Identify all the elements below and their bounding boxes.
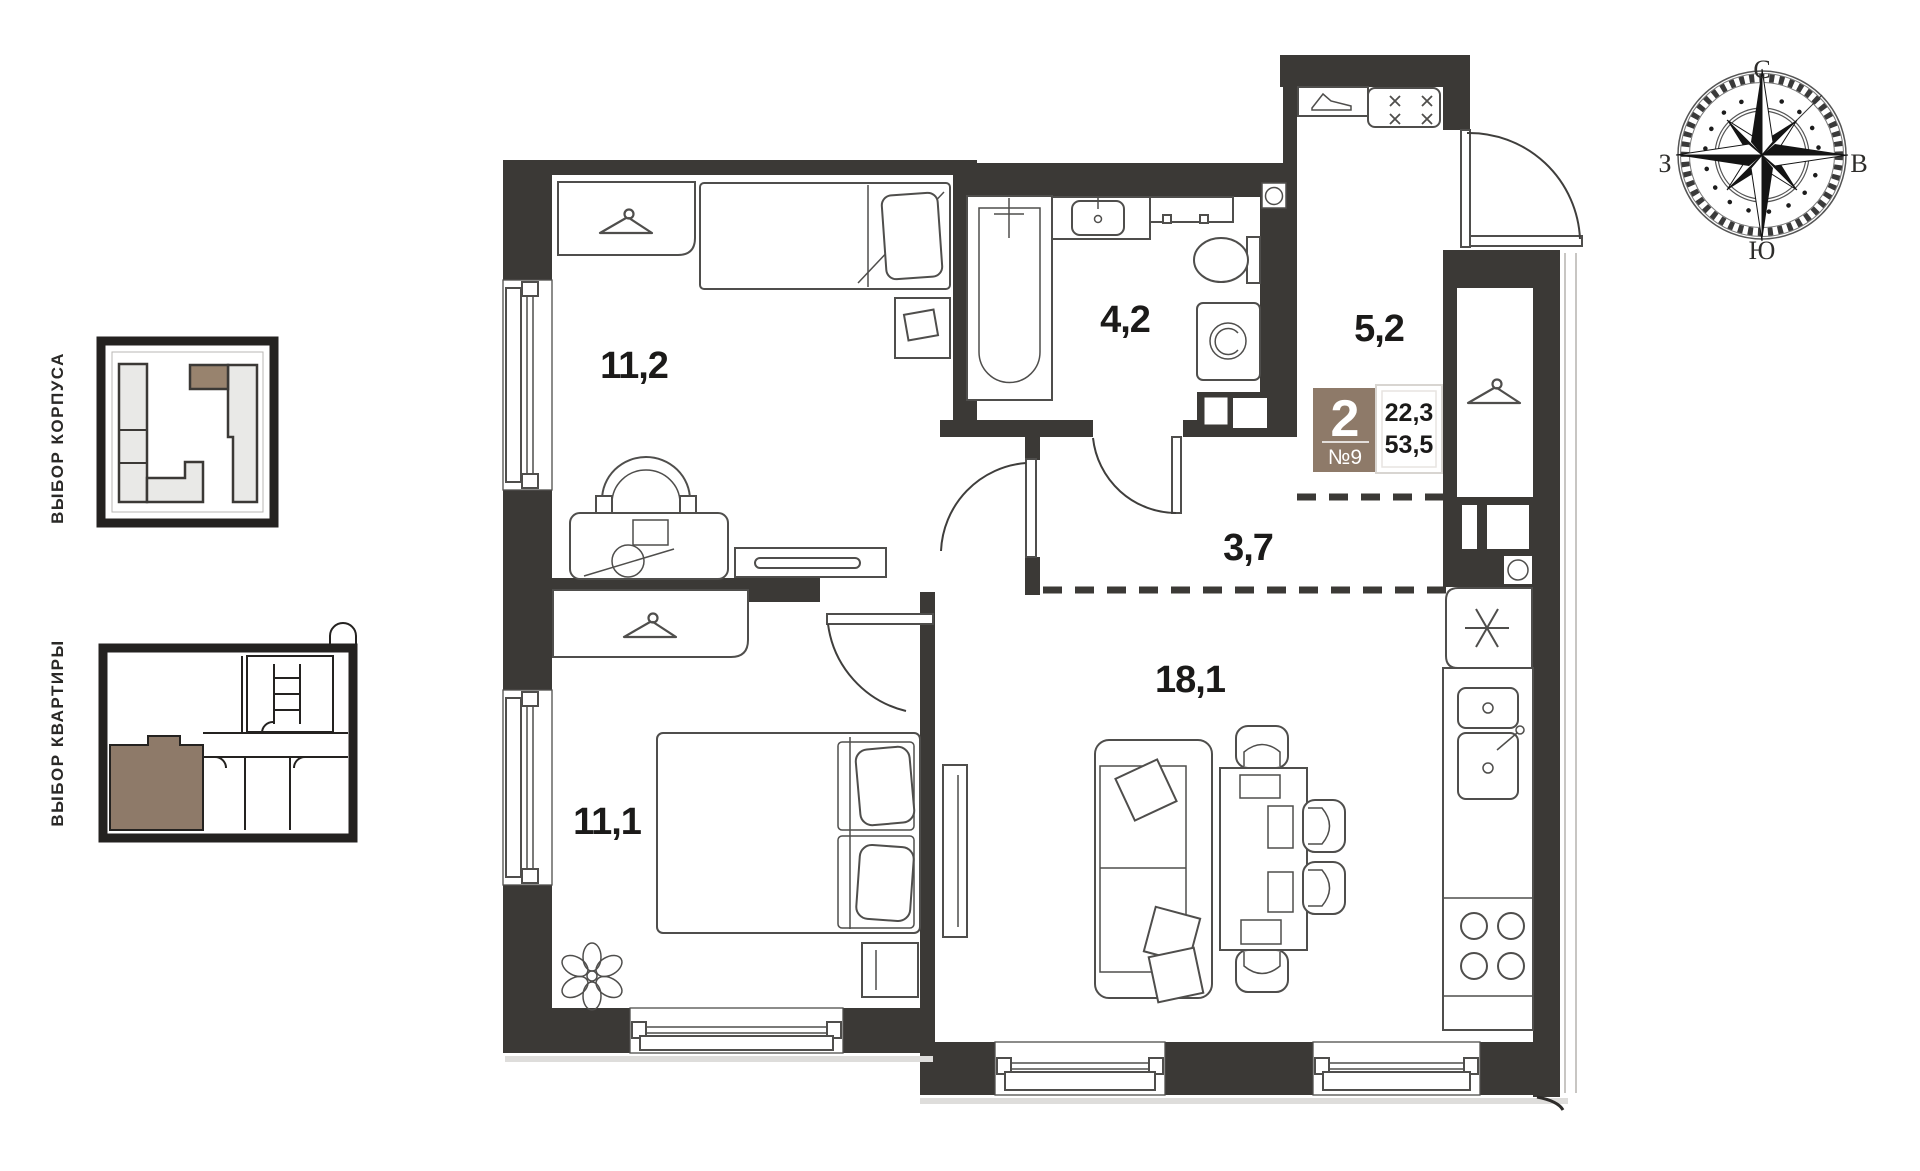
room-area-bedroom-top: 11,2	[600, 345, 668, 387]
room-area-living: 18,1	[1155, 659, 1226, 701]
sidebar: ВЫБОР КОРПУСА ВЫБОР КВАРТИРЫ	[48, 341, 356, 838]
window-bottom-living-1	[995, 1042, 1165, 1095]
bathroom-door	[1093, 437, 1181, 513]
apartment-selector-label: ВЫБОР КВАРТИРЫ	[48, 639, 67, 826]
window-left-bottom	[503, 690, 552, 885]
living-room-furniture	[943, 726, 1345, 1002]
fridge	[1446, 588, 1532, 668]
selected-apartment-highlight[interactable]	[110, 736, 203, 830]
badge-apartment-number: №9	[1328, 446, 1362, 469]
compass-east: В	[1850, 149, 1867, 178]
compass-west: З	[1658, 149, 1671, 178]
bathroom-fixtures	[967, 196, 1260, 400]
kitchen-counter	[1443, 668, 1533, 1030]
sofa	[1095, 740, 1212, 1002]
kitchen-column	[1443, 588, 1533, 1030]
plant-icon	[558, 943, 625, 1010]
dining-table	[1220, 768, 1307, 950]
building-selector-label: ВЫБОР КОРПУСА	[48, 352, 67, 524]
badge-area-total: 53,5	[1385, 431, 1434, 459]
bathtub	[967, 196, 1052, 400]
badge-area-living: 22,3	[1385, 399, 1434, 427]
compass-star	[1676, 69, 1848, 241]
compass-rose: С Ю З В	[1658, 55, 1867, 265]
window-left-top	[503, 280, 552, 490]
shelf	[1150, 197, 1233, 223]
window-bottom-bedroom	[630, 1008, 843, 1053]
shoe-cabinet	[1298, 87, 1368, 116]
selected-building-block[interactable]	[190, 365, 228, 389]
room-area-bedroom-bottom: 11,1	[573, 801, 642, 843]
apartment-selector-thumbnail[interactable]: ВЫБОР КВАРТИРЫ	[48, 623, 356, 838]
window-bottom-living-2	[1313, 1042, 1480, 1095]
bedroom-bottom-door	[827, 614, 933, 711]
floor-plan-page: ВЫБОР КОРПУСА ВЫБОР КВАРТИРЫ	[0, 0, 1920, 1171]
compass-south: Ю	[1749, 236, 1776, 265]
bedroom-top-door	[941, 459, 1036, 557]
washing-machine	[1197, 303, 1260, 380]
nightstand	[862, 943, 918, 997]
wardrobe	[553, 590, 748, 657]
pillow	[855, 844, 914, 922]
closet	[1368, 88, 1440, 127]
desk	[570, 513, 728, 579]
room-area-hallway: 3,7	[1223, 527, 1273, 569]
toilet	[1194, 237, 1260, 283]
badge-rooms-count: 2	[1331, 390, 1360, 448]
compass-north: С	[1753, 55, 1770, 84]
desk-chair	[596, 457, 696, 518]
kitchen-sink	[1458, 688, 1524, 799]
sofa-pillow	[1149, 948, 1204, 1003]
apartment-badge: 2 №9 22,3 53,5	[1313, 385, 1442, 473]
bathroom-sink	[1052, 197, 1150, 239]
double-bed	[657, 733, 920, 933]
pillow	[881, 192, 943, 280]
building-selector-thumbnail[interactable]: ВЫБОР КОРПУСА	[48, 341, 274, 524]
pillow	[855, 746, 915, 826]
apartment-floor-plan: 11,2	[503, 55, 1868, 1110]
room-area-bathroom: 4,2	[1100, 299, 1150, 341]
entrance-door	[1461, 130, 1582, 247]
hall-closet-niche	[1457, 288, 1533, 497]
tv-bench	[943, 765, 967, 937]
room-area-entry: 5,2	[1354, 308, 1404, 350]
bedroom-bottom-furniture	[553, 590, 920, 1010]
